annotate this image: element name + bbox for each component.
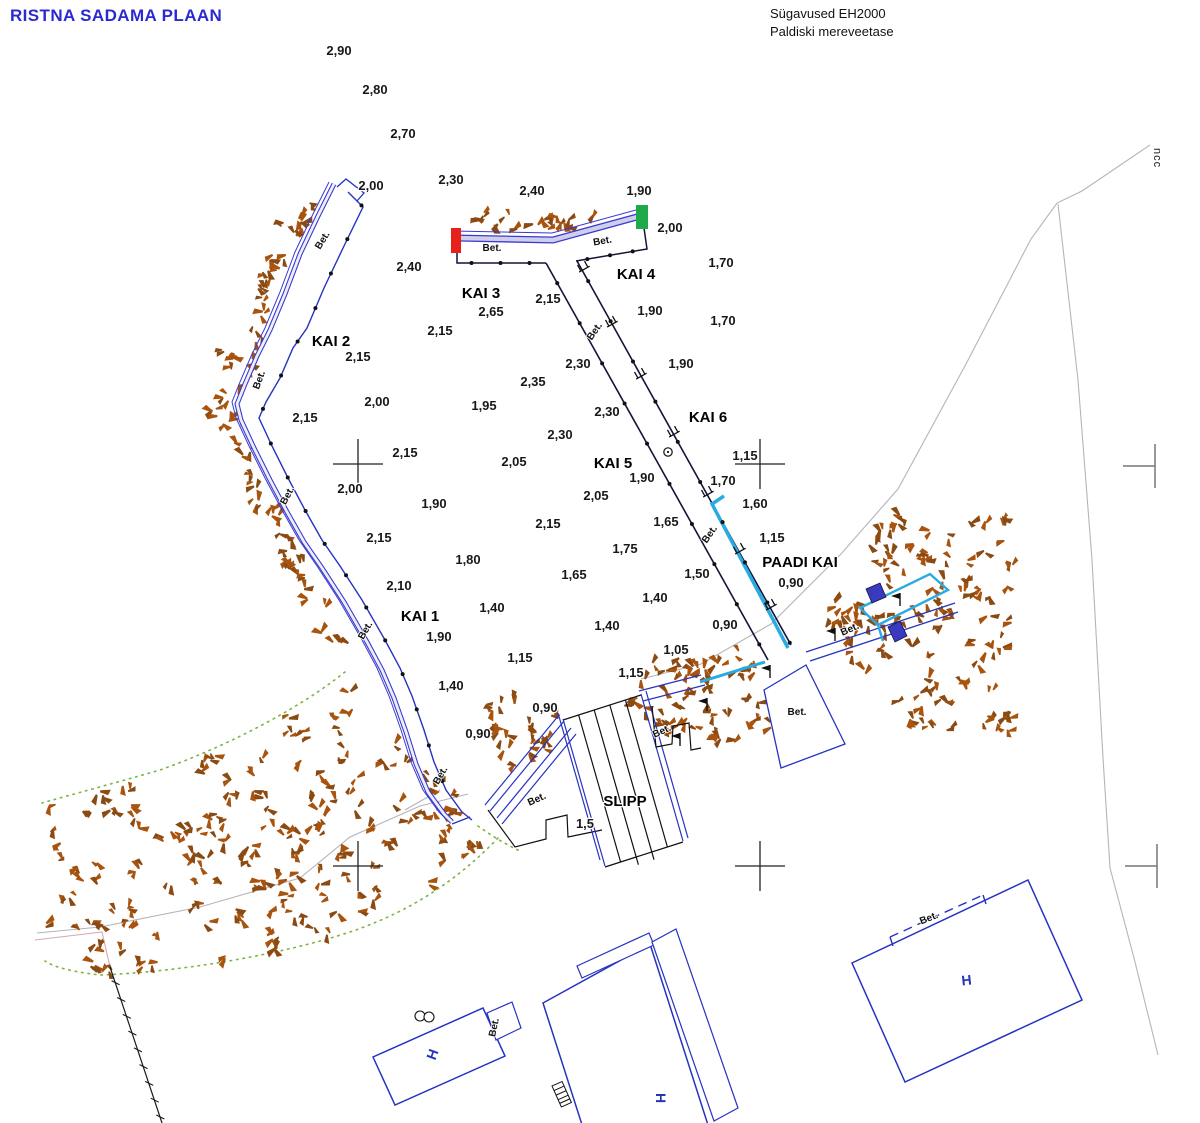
scrub-mark-icon	[200, 831, 208, 837]
tree-circle-1	[415, 1011, 425, 1021]
scrub-mark-icon	[324, 934, 331, 944]
concrete-label: Bet.	[356, 620, 375, 642]
depth-sounding: 1,05	[663, 642, 688, 657]
scrub-mark-icon	[945, 561, 950, 568]
scrub-mark-icon	[287, 225, 295, 235]
scrub-mark-icon	[87, 943, 98, 953]
scrub-mark-icon	[168, 885, 175, 895]
bollard-dot	[470, 261, 474, 265]
depth-sounding: 1,50	[684, 566, 709, 581]
bollard-dot	[364, 605, 368, 609]
depth-sounding: 1,15	[618, 665, 643, 680]
scrub-mark-icon	[332, 725, 341, 732]
scrub-mark-icon	[356, 798, 365, 807]
bollard-dot	[345, 237, 349, 241]
scrub-mark-icon	[996, 647, 1001, 655]
depth-sounding: 1,70	[708, 255, 733, 270]
depth-sounding: 1,15	[732, 448, 757, 463]
scrub-mark-icon	[826, 605, 836, 612]
scrub-mark-icon	[947, 531, 956, 538]
bollard-dot	[528, 261, 532, 265]
concrete-label: Bet.	[788, 707, 807, 718]
bollard-dot	[344, 573, 348, 577]
depth-sounding: 1,90	[637, 303, 662, 318]
bollard-dot	[585, 257, 589, 261]
scrub-mark-icon	[498, 695, 504, 703]
depth-sounding: 1,65	[653, 514, 678, 529]
scrub-mark-icon	[322, 598, 327, 605]
depth-sounding: 2,15	[535, 516, 560, 531]
scrub-mark-icon	[205, 849, 215, 859]
depth-sounding: 0,90	[532, 700, 557, 715]
depth-sounding: 2,05	[583, 488, 608, 503]
scrub-mark-icon	[117, 941, 122, 950]
concrete-label: Bet.	[431, 765, 450, 787]
scrub-mark-icon	[344, 750, 351, 758]
quay-label: KAI 3	[462, 285, 500, 302]
scrub-mark-icon	[721, 659, 730, 666]
bollard-dot	[743, 560, 747, 564]
scrub-mark-icon	[918, 706, 926, 717]
scrub-mark-icon	[919, 716, 925, 724]
slipway-area	[485, 675, 705, 867]
depth-sounding: 2,00	[364, 394, 389, 409]
scrub-mark-icon	[437, 858, 447, 867]
ladder-icon	[666, 425, 680, 437]
survey-cross-edge-icon	[1125, 844, 1157, 888]
bollard-dot	[555, 281, 559, 285]
scrub-mark-icon	[100, 787, 111, 795]
scrub-mark-icon	[982, 723, 987, 730]
scrub-mark-icon	[350, 779, 357, 786]
flag-icon	[891, 593, 900, 606]
depth-sounding: 0,90	[465, 726, 490, 741]
scrub-mark-icon	[218, 823, 227, 833]
scrub-mark-icon	[249, 877, 260, 885]
bollard-dot	[286, 475, 290, 479]
scrub-mark-icon	[977, 664, 987, 675]
scrub-mark-icon	[497, 706, 503, 715]
bollard-dot	[765, 601, 769, 605]
scrub-mark-icon	[392, 803, 401, 813]
depth-note: Sügavused EH2000 Paldiski mereveetase	[770, 5, 894, 41]
scrub-mark-icon	[979, 652, 990, 664]
flag-icon	[826, 628, 835, 641]
slipway-borders	[558, 691, 688, 866]
slip-right-quay	[639, 675, 705, 701]
scrub-mark-icon	[292, 917, 298, 926]
scrub-mark-icon	[330, 790, 337, 800]
scrub-mark-icon	[977, 615, 989, 625]
depth-sounding: 0,90	[778, 575, 803, 590]
building-b-stairs	[552, 1082, 571, 1107]
scrub-mark-icon	[302, 727, 310, 733]
scrub-mark-icon	[278, 891, 289, 898]
scrub-mark-icon	[299, 916, 307, 926]
depth-sounding: 2,40	[519, 183, 544, 198]
scrub-mark-icon	[252, 842, 262, 848]
scrub-mark-icon	[304, 923, 313, 931]
scrub-mark-icon	[253, 478, 262, 488]
scrub-mark-icon	[1010, 557, 1019, 566]
scrub-mark-icon	[478, 841, 483, 849]
depth-sounding: 1,75	[612, 541, 637, 556]
depth-sounding: 1,5	[576, 816, 594, 831]
quay-label: SLIPP	[603, 793, 646, 810]
scrub-mark-icon	[84, 918, 91, 926]
scrub-mark-icon	[197, 860, 203, 868]
tree-icon	[415, 1011, 434, 1022]
scrub-mark-icon	[222, 365, 231, 370]
scrub-mark-icon	[118, 948, 128, 956]
scrub-mark-icon	[259, 314, 267, 324]
depth-sounding: 2,40	[396, 259, 421, 274]
scrub-mark-icon	[446, 825, 453, 834]
scrub-mark-icon	[943, 550, 952, 559]
bollard-dot	[653, 400, 657, 404]
scrub-mark-icon	[303, 825, 314, 836]
bollard-dot	[631, 359, 635, 363]
buildings	[373, 880, 1082, 1123]
bollard-dot	[645, 442, 649, 446]
scrub-mark-icon	[289, 714, 299, 720]
stairs-rect	[552, 1082, 571, 1107]
depth-sounding: 2,30	[594, 404, 619, 419]
depth-sounding: 1,90	[426, 629, 451, 644]
scrub-mark-icon	[393, 744, 401, 752]
scrub-mark-icon	[220, 843, 228, 854]
bollard-dot	[676, 440, 680, 444]
bollard-dot	[427, 743, 431, 747]
fence-line	[110, 967, 164, 1123]
scrub-mark-icon	[885, 573, 892, 583]
depth-sounding: 2,15	[366, 530, 391, 545]
scrub-mark-icon	[986, 685, 992, 693]
depth-sounding: 2,65	[478, 304, 503, 319]
depth-sounding: 1,70	[710, 313, 735, 328]
quay-label: KAI 4	[617, 266, 656, 283]
road-southwest	[37, 794, 468, 933]
scrub-mark-icon	[139, 824, 150, 832]
scrub-mark-icon	[966, 561, 974, 569]
bollard-dot	[261, 407, 265, 411]
slipway-border-right-1	[641, 694, 683, 841]
scrub-mark-icon	[320, 896, 329, 903]
bollard-dot	[359, 203, 363, 207]
scrub-mark-icon	[933, 698, 943, 706]
bollard-dot	[586, 279, 590, 283]
scrub-mark-icon	[255, 295, 262, 300]
bollard-dot	[690, 522, 694, 526]
scrub-mark-icon	[498, 216, 507, 224]
scrub-mark-icon	[276, 828, 285, 837]
concrete-label: Bet.	[278, 485, 297, 507]
bollard-dot	[304, 509, 308, 513]
flag-pennant	[761, 665, 770, 671]
slipway-border-left-2	[563, 719, 605, 866]
scrub-mark-icon	[883, 543, 890, 552]
scrub-mark-icon	[91, 794, 101, 806]
scrub-mark-icon	[845, 650, 853, 655]
scrub-mark-icon	[348, 683, 359, 693]
depth-sounding: 2,00	[337, 481, 362, 496]
scrub-mark-icon	[260, 302, 266, 311]
scrub-mark-icon	[1005, 614, 1013, 621]
scrub-mark-icon	[998, 631, 1005, 639]
scrub-mark-icon	[505, 208, 510, 215]
survey-cross-icon	[735, 841, 785, 891]
scrub-mark-icon	[496, 750, 507, 762]
scrub-mark-icon	[849, 656, 856, 666]
slipway-top	[563, 695, 641, 720]
scrub-mark-icon	[356, 770, 366, 778]
depth-sounding: 1,15	[507, 650, 532, 665]
scrub-mark-icon	[269, 818, 275, 827]
scrub-mark-icon	[746, 671, 757, 681]
quay-label: KAI 5	[594, 455, 632, 472]
scrub-mark-icon	[48, 803, 56, 809]
depth-sounding: 0,90	[712, 617, 737, 632]
tree-circle-2	[424, 1012, 434, 1022]
building-label: H	[653, 1093, 669, 1103]
scrub-mark-icon	[260, 825, 268, 831]
building-label: H	[961, 972, 973, 989]
scrub-mark-icon	[370, 899, 377, 910]
scrub-mark-icon	[523, 222, 534, 229]
scrub-mark-icon	[921, 725, 928, 730]
scrub-mark-icon	[325, 926, 331, 934]
scrub-mark-icon	[890, 559, 900, 569]
bollard-dot	[383, 638, 387, 642]
scrub-mark-icon	[148, 959, 158, 966]
concrete-label: Bet.	[526, 791, 548, 809]
scrub-mark-icon	[260, 749, 270, 759]
scrub-mark-icon	[507, 732, 518, 741]
scrub-mark-icon	[919, 685, 930, 694]
bollard-dot	[712, 562, 716, 566]
scrub-mark-icon	[938, 569, 946, 580]
bollard-dot	[323, 542, 327, 546]
depth-sounding: 1,65	[561, 567, 586, 582]
scrub-mark-icon	[925, 667, 935, 679]
slipway-rail-3	[610, 705, 654, 860]
quay-label: KAI 1	[401, 608, 439, 625]
scrub-mark-icon	[203, 922, 213, 933]
bollard-dot	[600, 361, 604, 365]
scrub-mark-icon	[222, 400, 232, 410]
scrub-mark-icon	[398, 818, 408, 825]
scrub-mark-icon	[68, 897, 76, 908]
scrub-mark-icon	[693, 660, 699, 668]
scrub-mark-icon	[262, 294, 270, 302]
depth-sounding: 2,10	[386, 578, 411, 593]
scrub-mark-icon	[246, 481, 253, 486]
flag-pennant	[891, 593, 900, 599]
scrub-mark-icon	[852, 603, 859, 613]
dock-building-1	[866, 583, 886, 603]
scrub-mark-icon	[299, 598, 309, 607]
depth-sounding: 1,15	[759, 530, 784, 545]
scrub-mark-icon	[321, 879, 331, 886]
scrub-mark-icon	[353, 809, 361, 820]
scrub-mark-icon	[268, 905, 279, 913]
concrete-label: Bet.	[483, 243, 502, 254]
scrub-mark-icon	[990, 612, 1000, 619]
scrub-mark-icon	[208, 414, 218, 420]
depth-sounding: 2,35	[520, 374, 545, 389]
scrub-mark-icon	[253, 787, 264, 795]
scrub-mark-icon	[281, 713, 289, 719]
scrub-mark-icon	[215, 752, 226, 760]
scrub-mark-icon	[414, 809, 423, 816]
depth-sounding: 1,40	[438, 678, 463, 693]
scrub-mark-icon	[428, 882, 439, 892]
scrub-mark-icon	[248, 326, 255, 334]
survey-cross-icon	[735, 439, 785, 489]
scrub-mark-icon	[1010, 713, 1019, 719]
depth-note-line2: Paldiski mereveetase	[770, 23, 894, 41]
scrub-mark-icon	[912, 694, 920, 701]
depth-sounding: 2,80	[362, 82, 387, 97]
scrub-mark-icon	[311, 627, 323, 637]
scrub-mark-icon	[722, 708, 728, 715]
depth-sounding: 1,60	[742, 496, 767, 511]
bollard-dot	[313, 306, 317, 310]
scrub-mark-icon	[901, 568, 906, 576]
bollard-dot	[329, 271, 333, 275]
veg-border-upper	[42, 672, 345, 803]
bollard-dot	[788, 641, 792, 645]
scrub-mark-icon	[290, 540, 297, 551]
scrub-mark-icon	[274, 532, 282, 539]
scrub-mark-icon	[252, 308, 263, 316]
quay-label: KAI 6	[689, 409, 727, 426]
scrub-mark-icon	[946, 539, 952, 548]
scrub-mark-icon	[975, 549, 986, 558]
scrub-mark-icon	[657, 707, 664, 716]
ladder-icon	[763, 598, 777, 610]
scrub-mark-icon	[345, 875, 351, 883]
scrub-mark-icon	[126, 898, 133, 907]
bollard-dot	[631, 249, 635, 253]
scrub-mark-icon	[101, 809, 113, 819]
scrub-mark-icon	[209, 917, 219, 923]
bollard-dot	[401, 672, 405, 676]
scrub-mark-icon	[82, 955, 94, 966]
bollard-dot	[757, 642, 761, 646]
bollard-dot	[735, 602, 739, 606]
slipway-border-left-1	[558, 713, 600, 860]
scrub-mark-icon	[505, 738, 514, 748]
bollard-dot	[608, 253, 612, 257]
depth-sounding: 2,15	[292, 410, 317, 425]
scrub-mark-icon	[319, 892, 327, 899]
bollard-dot	[578, 321, 582, 325]
depth-sounding: 2,00	[657, 220, 682, 235]
slipway-bottom	[605, 842, 683, 867]
scrub-mark-icon	[1008, 726, 1017, 732]
scrub-mark-icon	[308, 801, 319, 812]
scrub-mark-icon	[709, 716, 716, 726]
scrub-mark-icon	[337, 911, 347, 923]
survey-cross-edge-icon	[1123, 444, 1155, 488]
edge-rotated-text: ncc	[1151, 148, 1163, 168]
depth-sounding: 1,40	[594, 618, 619, 633]
depth-sounding: 2,05	[501, 454, 526, 469]
slipway-rail-2	[594, 710, 638, 865]
scrub-mark-icon	[397, 792, 408, 803]
scrub-mark-icon	[194, 851, 206, 862]
scrub-mark-icon	[155, 932, 161, 941]
depth-sounding: 1,70	[710, 473, 735, 488]
depth-note-line1: Sügavused EH2000	[770, 5, 894, 23]
depth-sounding: 2,15	[345, 349, 370, 364]
road-southeast	[1058, 204, 1158, 1055]
depth-sounding: 2,00	[358, 178, 383, 193]
scrub-mark-icon	[346, 708, 355, 718]
scrub-mark-icon	[958, 585, 963, 592]
depth-sounding: 2,30	[438, 172, 463, 187]
scrub-mark-icon	[924, 531, 933, 540]
scrub-mark-icon	[339, 687, 349, 696]
scrub-mark-icon	[206, 820, 213, 830]
depth-sounding: 1,90	[668, 356, 693, 371]
concrete-label: Bet.	[700, 523, 720, 545]
red-beacon	[451, 228, 461, 253]
depth-sounding: 1,40	[642, 590, 667, 605]
scrub-mark-icon	[987, 595, 996, 606]
scrub-mark-icon	[187, 844, 194, 854]
depth-sounding: 2,30	[547, 427, 572, 442]
quay-label: KAI 2	[312, 333, 350, 350]
scrub-mark-icon	[234, 446, 245, 458]
scrub-mark-icon	[314, 882, 322, 891]
scrub-mark-icon	[282, 259, 287, 267]
depth-sounding: 1,90	[626, 183, 651, 198]
bollard-dot	[499, 261, 503, 265]
scrub-mark-icon	[845, 606, 855, 616]
scrub-mark-icon	[200, 866, 208, 876]
scrub-mark-icon	[885, 582, 893, 591]
scrub-mark-icon	[219, 387, 227, 395]
scrub-mark-icon	[316, 798, 326, 809]
scrub-mark-icon	[882, 567, 890, 573]
bollard-dot	[623, 402, 627, 406]
depth-sounding: 1,90	[421, 496, 446, 511]
concrete-label: Bet.	[313, 230, 332, 252]
bollard-dot	[667, 482, 671, 486]
scrub-mark-icon	[218, 836, 227, 843]
scrub-mark-icon	[428, 877, 438, 883]
bollard-dot	[698, 480, 702, 484]
scrub-mark-icon	[337, 741, 346, 750]
depth-sounding: 1,90	[629, 470, 654, 485]
scrub-mark-icon	[761, 726, 772, 735]
scrub-mark-icon	[247, 498, 255, 506]
scrub-mark-icon	[967, 554, 977, 562]
scrub-mark-icon	[639, 680, 645, 690]
bollard-dot	[415, 707, 419, 711]
scrub-mark-icon	[991, 682, 999, 691]
depth-sounding: 2,90	[326, 43, 351, 58]
scrub-mark-icon	[390, 762, 397, 767]
scrub-mark-icon	[267, 806, 278, 816]
depth-sounding: 1,80	[455, 552, 480, 567]
veg-border-slip	[478, 826, 522, 852]
scrub-mark-icon	[392, 733, 403, 745]
bollard-dot	[296, 339, 300, 343]
scrub-mark-icon	[555, 215, 560, 224]
